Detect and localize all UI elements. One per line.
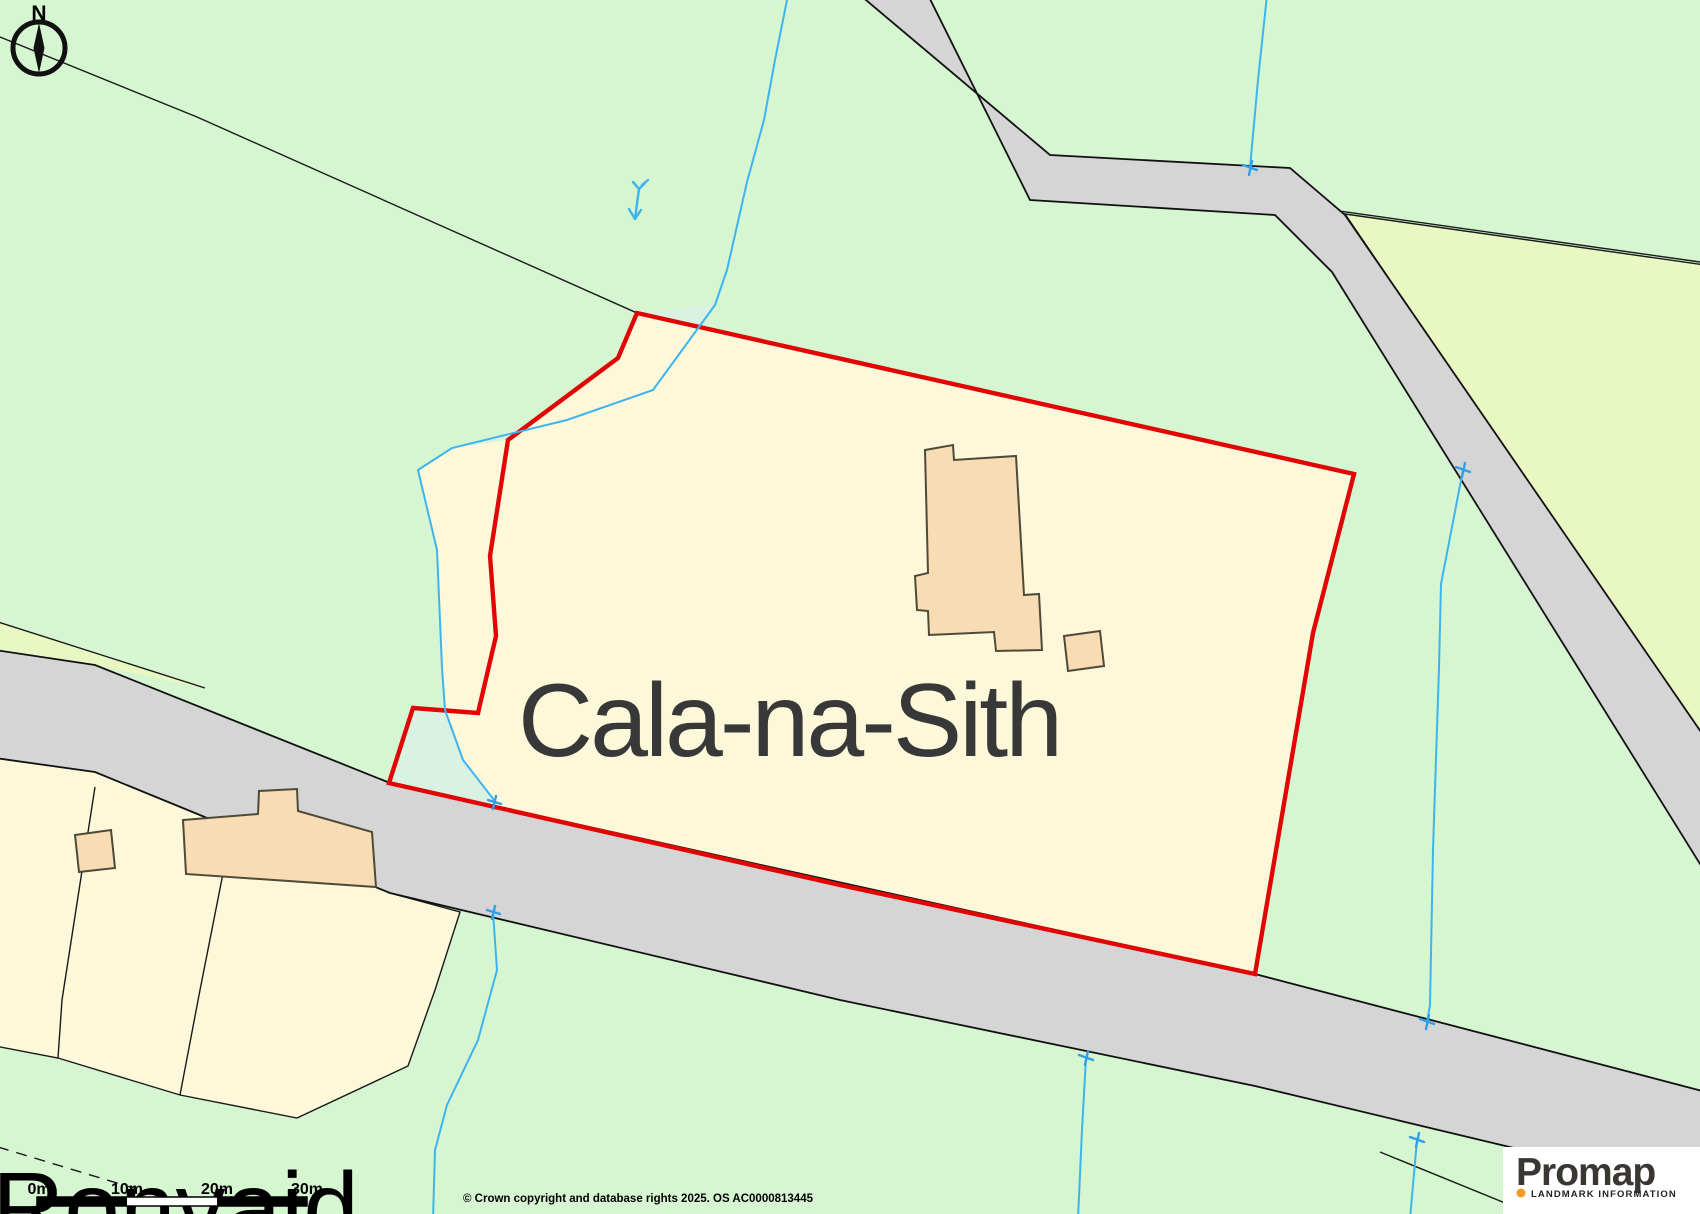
scale-label-30m: 30m xyxy=(291,1181,323,1198)
promap-tagline-text: LANDMARK INFORMATION xyxy=(1531,1189,1677,1200)
promap-brand-text: Promap xyxy=(1516,1151,1655,1194)
promap-logo: Promap LANDMARK INFORMATION xyxy=(1503,1147,1700,1214)
building-southwest-small xyxy=(75,830,115,872)
north-label: N xyxy=(31,2,46,25)
scale-label-10m: 10m xyxy=(111,1181,143,1198)
copyright-attribution: © Crown copyright and database rights 20… xyxy=(463,1193,814,1205)
scale-label-20m: 20m xyxy=(201,1181,233,1198)
building-outbuilding xyxy=(1064,631,1104,671)
scale-label-0m: 0m xyxy=(27,1181,50,1198)
map-canvas[interactable]: Ronvaid Cala-na-Sith 0m 10m 20m 30m © Cr… xyxy=(0,0,1700,1214)
promap-orange-dot-icon xyxy=(1517,1189,1526,1198)
property-name-label: Cala-na-Sith xyxy=(518,663,1060,779)
map-svg: Ronvaid Cala-na-Sith 0m 10m 20m 30m © Cr… xyxy=(0,0,1700,1214)
